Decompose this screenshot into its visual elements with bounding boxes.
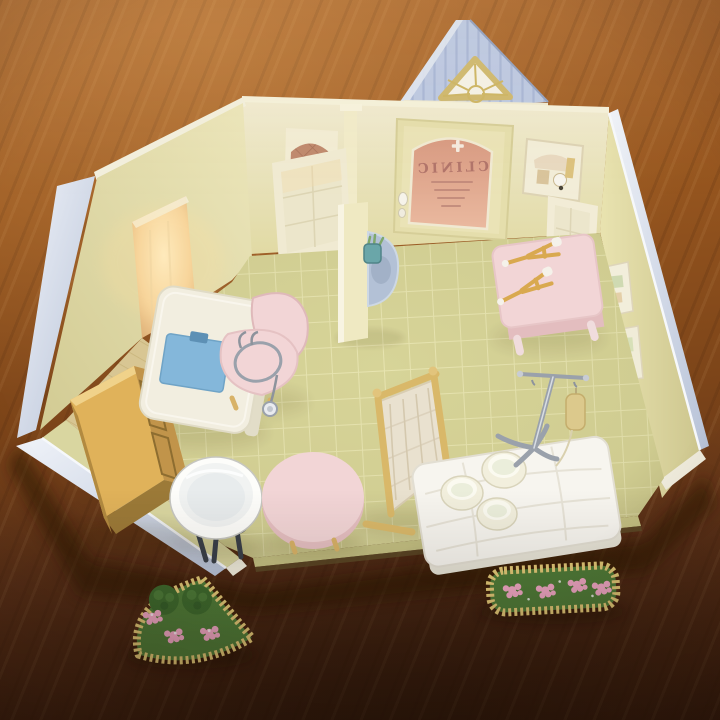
- flower-planter-rect: [489, 565, 617, 614]
- scene: CLINIC: [0, 0, 720, 720]
- stool-top: [262, 452, 364, 542]
- partition-edge-highlight: [338, 204, 344, 343]
- bowl: [441, 476, 483, 510]
- door-glass: [409, 138, 492, 229]
- photo-of-toy-clinic: CLINIC: [0, 0, 720, 720]
- iv-bar-knob: [517, 371, 523, 377]
- basin-bowl-inner: [187, 473, 245, 521]
- bowl: [477, 498, 517, 530]
- clinic-door: CLINIC: [394, 119, 513, 240]
- partition-post-cap: [340, 104, 362, 111]
- roof-gable: [393, 20, 548, 113]
- bowl: [482, 452, 526, 488]
- screen-knob-right: [429, 367, 438, 376]
- clipboard-board: [159, 333, 230, 392]
- wall-poster-interior: [523, 139, 583, 201]
- iv-bar-knob: [583, 375, 589, 381]
- iv-bag: [566, 394, 585, 430]
- screen-knob-left: [373, 389, 382, 398]
- clinic-sign-text: CLINIC: [415, 159, 489, 178]
